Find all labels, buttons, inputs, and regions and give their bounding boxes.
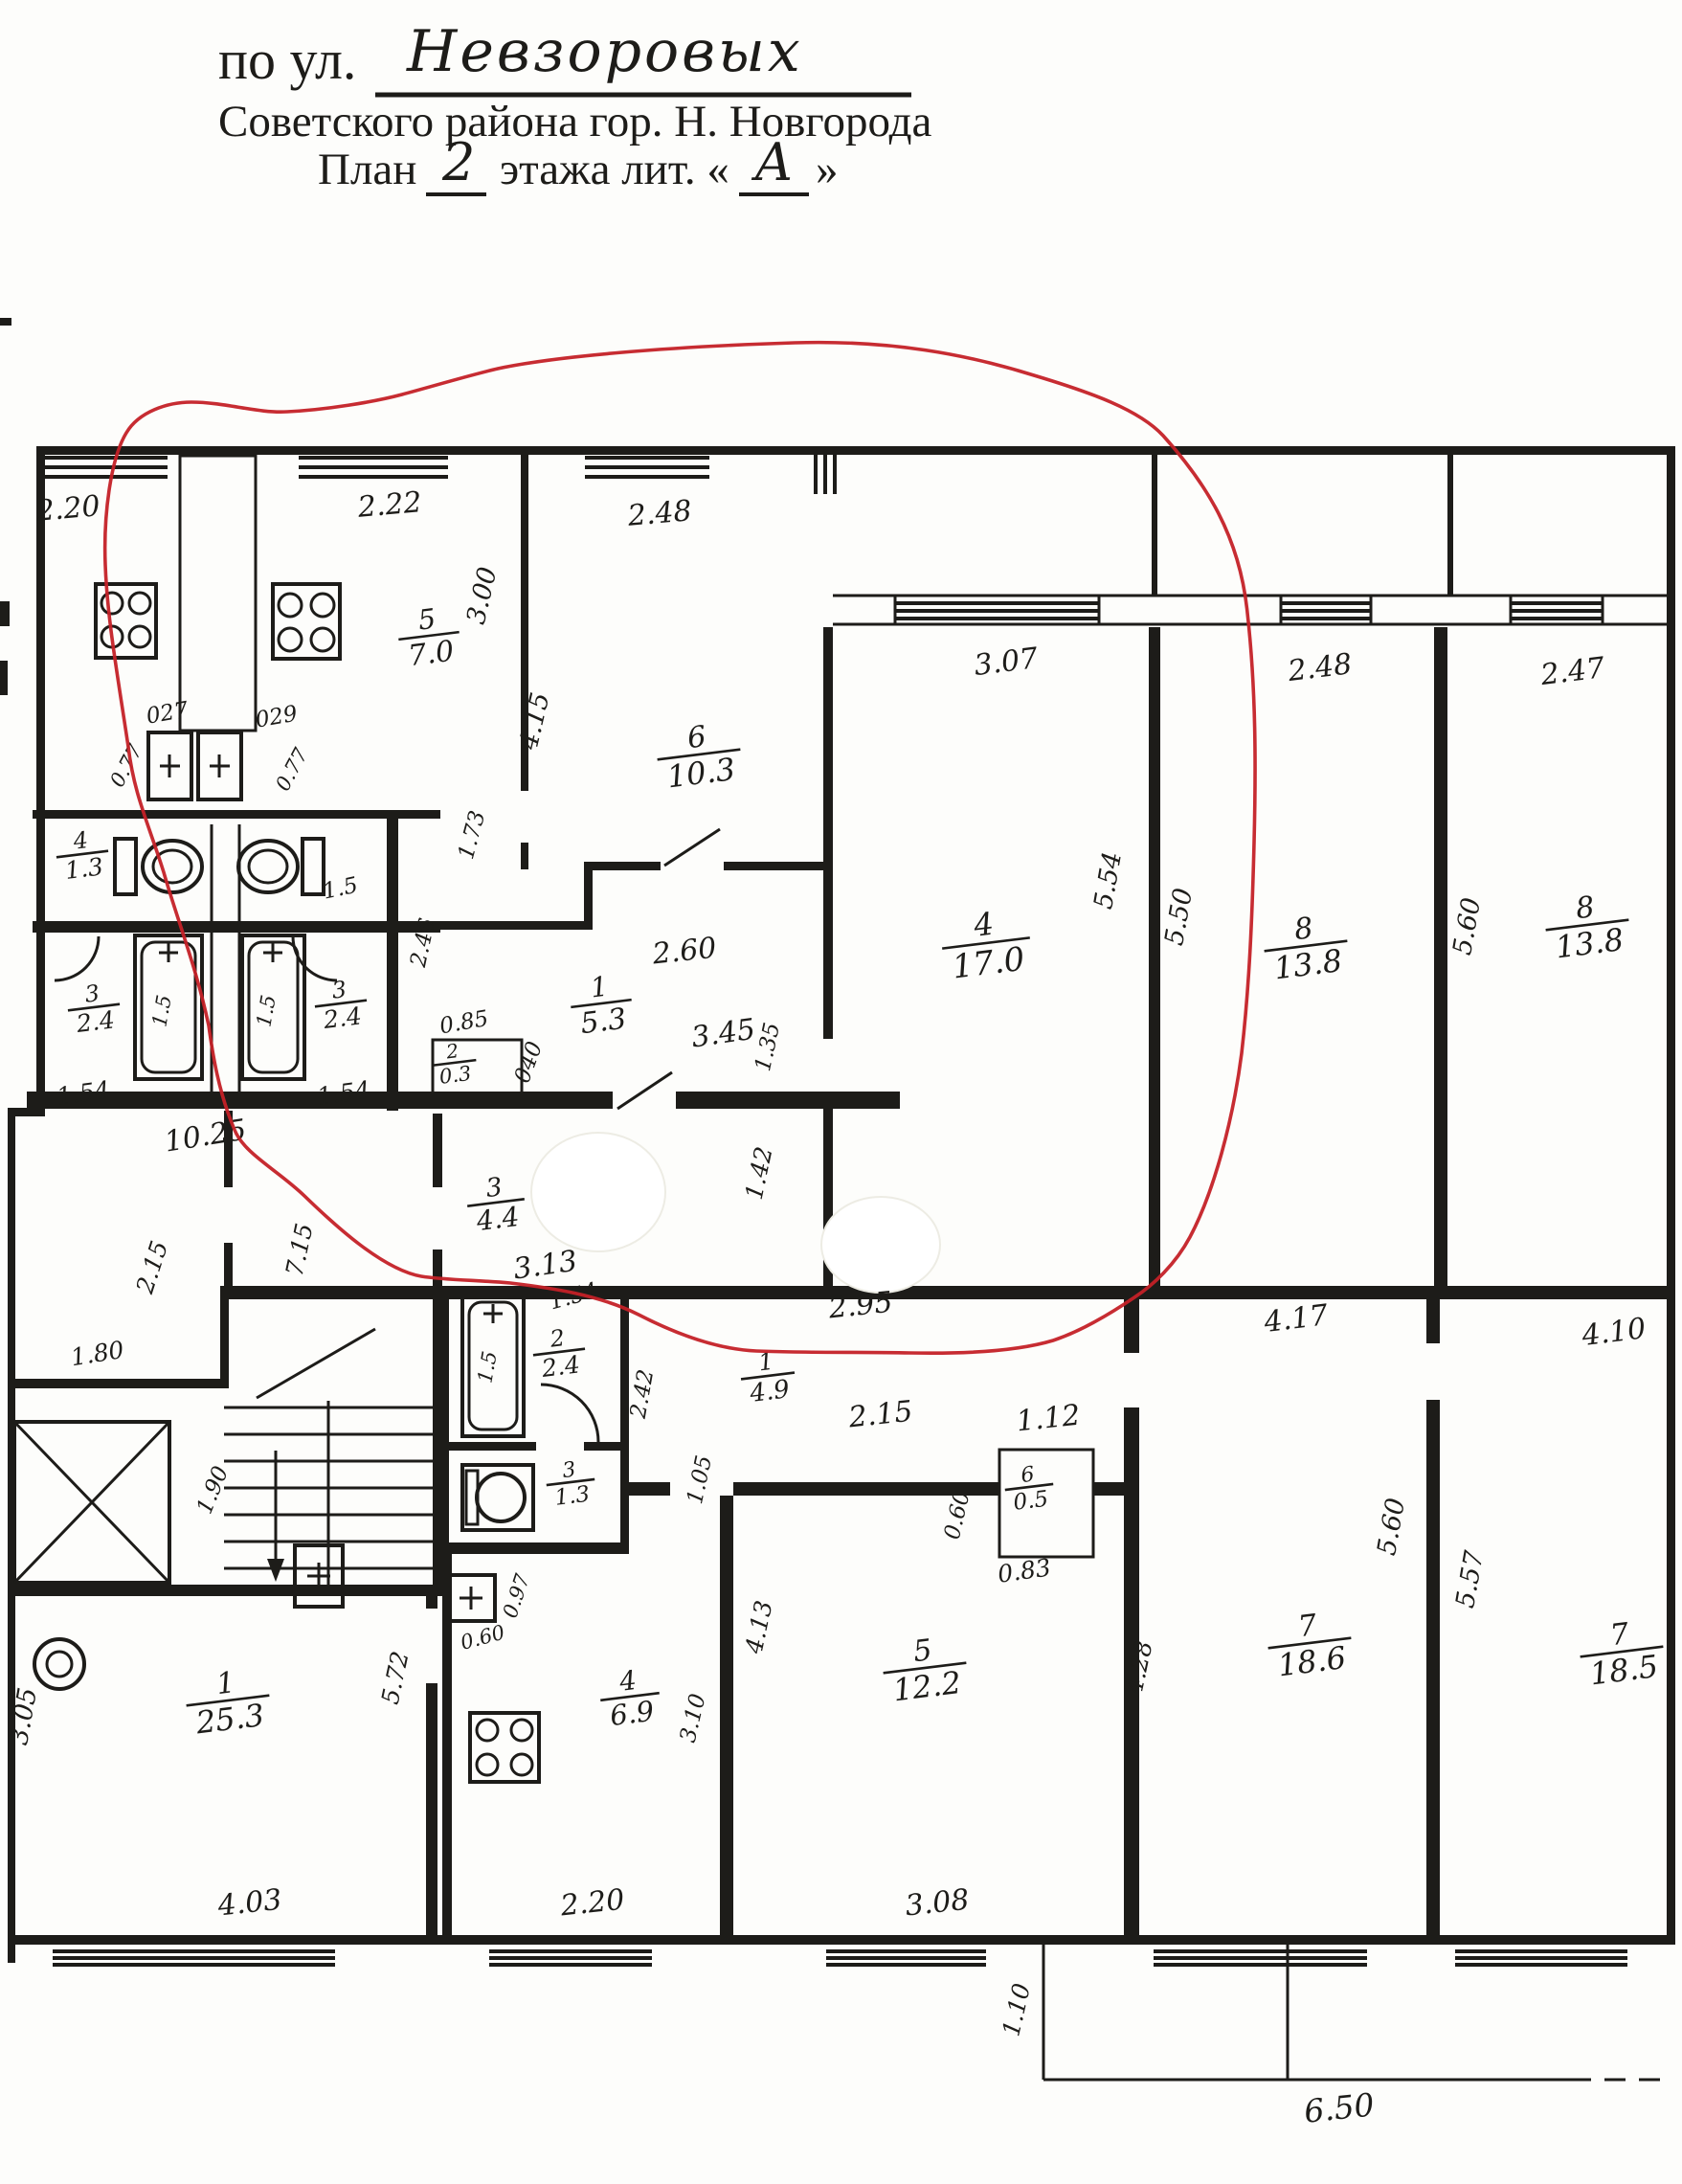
plan-word: План [318, 145, 416, 194]
street-prefix: по ул. [218, 29, 356, 91]
room-label: 417.0 [937, 901, 1034, 987]
room-area: 1.3 [63, 852, 104, 885]
room-label: 14.9 [737, 1344, 797, 1409]
title-block: по ул. Невзоровых Советского района гор.… [218, 18, 932, 194]
dimension-label: 3.10 [676, 1692, 711, 1745]
dimension-label: 1.10 [997, 1981, 1036, 2039]
dimension-label: 4.03 [215, 1883, 283, 1924]
room-number: 8 [1292, 912, 1314, 947]
window-icon [1154, 1951, 1367, 1965]
dimension-label: 7.15 [280, 1221, 319, 1278]
room-number: 5 [911, 1633, 933, 1669]
washbasin-icon [462, 1465, 533, 1530]
room-number: 3 [83, 979, 101, 1008]
room-label: 610.3 [653, 716, 745, 796]
room-label: 22.4 [530, 1322, 589, 1384]
room-label: 57.0 [394, 600, 463, 674]
sink-icon [148, 732, 191, 799]
dimension-label: 3.13 [511, 1245, 579, 1287]
room-area: 0.3 [438, 1062, 473, 1089]
room-number: 7 [1296, 1609, 1319, 1644]
dimension-label: 5.54 [1088, 849, 1128, 912]
window-icon [299, 458, 448, 477]
dimension-label: 0.97 [499, 1570, 534, 1620]
district-line: Советского района гор. Н. Новгорода [218, 97, 932, 146]
fixtures-layer [0, 318, 720, 1782]
stove-icon [96, 584, 156, 658]
room-label: 125.3 [182, 1662, 274, 1742]
litera-label: этажа лит. « [500, 145, 729, 194]
dimension-label: 1.5 [252, 993, 280, 1028]
room-number: 4 [971, 906, 996, 944]
door-leaf [617, 1072, 672, 1109]
room-label: 31.3 [544, 1455, 598, 1511]
door-leaf [664, 829, 720, 866]
door-arc [541, 1385, 598, 1442]
room-label: 34.4 [463, 1170, 528, 1238]
dimension-label: 2.60 [650, 932, 718, 972]
room-area: 13.8 [1554, 921, 1626, 965]
sink-icon [198, 732, 241, 799]
sink-icon [295, 1545, 343, 1607]
scan-artifact [0, 318, 11, 695]
room-area: 2.4 [321, 1002, 363, 1034]
street-name-handwritten: Невзоровых [406, 18, 803, 85]
room-area: 25.3 [193, 1697, 266, 1742]
toilet-icon [238, 839, 324, 894]
door-arc [293, 936, 337, 980]
room-label: 813.8 [1260, 908, 1352, 987]
whiteout-marks [531, 1133, 940, 1293]
dimension-label: 5.50 [1159, 886, 1199, 948]
room-number: 7 [1608, 1617, 1631, 1653]
dimension-label: 5.60 [1447, 895, 1487, 957]
room-label: 41.3 [54, 824, 112, 886]
room-label: 46.9 [596, 1662, 663, 1733]
dimension-label: 1.80 [69, 1336, 126, 1371]
room-area: 17.0 [951, 940, 1027, 987]
dimension-label: 5.57 [1450, 1547, 1490, 1610]
dimension-label: 0.77 [105, 740, 146, 791]
dimension-label: 1.35 [751, 1021, 785, 1074]
room-area: 4.9 [748, 1375, 792, 1408]
dimension-label: 3.08 [904, 1883, 971, 1924]
room-area: 0.5 [1012, 1487, 1049, 1516]
room-area: 4.4 [474, 1201, 521, 1237]
room-label: 32.4 [65, 978, 123, 1039]
dimension-label: 1.5 [147, 993, 175, 1028]
window-icon [489, 1951, 652, 1965]
litera-handwritten: А [751, 132, 794, 192]
vent-shaft [180, 456, 256, 731]
room-label: 813.8 [1541, 887, 1633, 966]
garbage-chute-icon [34, 1639, 84, 1689]
dimension-label: 2.47 [1538, 651, 1607, 692]
window-icon [826, 1951, 986, 1965]
room-number: 8 [1574, 890, 1596, 926]
room-label: 32.4 [312, 974, 370, 1035]
room-label: 60.5 [1002, 1460, 1057, 1516]
dimension-label: 1.42 [740, 1144, 778, 1202]
room-label: 20.3 [429, 1037, 480, 1090]
room-label: 718.6 [1264, 1605, 1356, 1684]
room-number: 4 [71, 826, 89, 855]
dimension-label: 5.60 [1372, 1496, 1411, 1558]
quote-close: » [816, 145, 839, 194]
window-icon [53, 1951, 335, 1965]
dimension-label: 0.60 [458, 1621, 506, 1655]
stove-icon [470, 1713, 539, 1782]
room-area: 2.4 [539, 1350, 581, 1383]
dimension-label: 2.95 [826, 1286, 894, 1326]
stove-icon [273, 584, 340, 659]
dimension-label: 2.20 [34, 489, 101, 529]
room-area: 10.3 [665, 751, 737, 795]
dimension-label: 1.05 [683, 1453, 717, 1507]
dimension-label: 6.50 [1302, 2085, 1376, 2129]
room-number: 5 [416, 603, 437, 637]
room-number: 2 [548, 1324, 566, 1353]
room-number: 3 [561, 1458, 577, 1484]
dimension-label: 0.85 [437, 1006, 490, 1039]
room-area: 18.5 [1588, 1648, 1660, 1692]
dimension-label: 029 [254, 701, 300, 732]
dimension-label: 0.60 [940, 1489, 976, 1542]
red-pen-annotation [105, 343, 1255, 1354]
dimension-label: 1.12 [1015, 1399, 1082, 1439]
room-label: 15.3 [567, 968, 636, 1042]
dimension-label: 4.10 [1580, 1312, 1648, 1353]
room-area: 1.3 [553, 1482, 591, 1511]
dimension-label: 0.77 [271, 744, 312, 795]
dimension-label: 0.83 [996, 1553, 1052, 1587]
room-number: 6 [1020, 1463, 1036, 1489]
toilet-icon [115, 839, 202, 894]
sink-icon [447, 1575, 495, 1621]
dimension-label: 4.15 [514, 689, 556, 754]
dimension-label: 4.17 [1262, 1298, 1331, 1340]
dimension-label: 1.5 [321, 873, 360, 905]
dimension-label: 2.42 [626, 1367, 660, 1421]
door-arc [55, 936, 99, 980]
room-number: 4 [617, 1665, 638, 1698]
window-icon [1455, 1951, 1627, 1965]
scanned-floor-plan-page: по ул. Невзоровых Советского района гор.… [0, 0, 1682, 2184]
room-area: 7.0 [407, 635, 457, 674]
room-number: 6 [685, 720, 707, 755]
room-area: 2.4 [74, 1005, 116, 1038]
dimension-label: 3.45 [689, 1013, 757, 1055]
room-number: 1 [589, 971, 610, 1004]
dimension-label: 040 [510, 1039, 548, 1087]
dimension-label: 3.00 [461, 564, 504, 627]
dimension-label: 1.90 [192, 1463, 234, 1518]
dimension-label: 5.72 [376, 1649, 415, 1706]
dimension-label: 027 [145, 697, 191, 729]
floor-number-handwritten: 2 [441, 132, 475, 192]
staircase [224, 1329, 433, 1585]
floor-plan-scan: по ул. Невзоровых Советского района гор.… [0, 0, 1682, 2184]
stairs-arrow [267, 1559, 284, 1582]
room-label: 512.2 [879, 1630, 971, 1709]
dimension-label: 1.5 [473, 1349, 501, 1385]
dimension-label: 2.22 [355, 485, 423, 525]
room-area: 12.2 [891, 1664, 963, 1708]
dimension-label: 2.15 [130, 1237, 173, 1297]
room-label: 718.5 [1576, 1613, 1668, 1693]
room-number: 1 [214, 1666, 236, 1701]
dimension-label: 3.07 [973, 642, 1041, 683]
window-icon [40, 458, 168, 477]
dimension-label: 1.73 [454, 808, 490, 862]
dimension-label: 2.48 [1286, 647, 1355, 688]
room-number: 3 [330, 976, 348, 1004]
room-area: 5.3 [579, 1002, 629, 1042]
dimension-label: 2.48 [625, 494, 693, 533]
room-area: 6.9 [608, 1695, 656, 1732]
room-number: 2 [444, 1039, 460, 1063]
room-number: 3 [484, 1172, 505, 1204]
window-icon [585, 458, 709, 477]
dimension-label: 2.15 [846, 1395, 914, 1435]
dimension-label: 2.20 [558, 1883, 626, 1924]
dimension-label: 4.13 [740, 1598, 778, 1656]
elevator [14, 1422, 169, 1583]
room-area: 13.8 [1272, 942, 1344, 986]
dimension-label: 10.25 [162, 1114, 248, 1160]
room-area: 18.6 [1276, 1639, 1348, 1683]
